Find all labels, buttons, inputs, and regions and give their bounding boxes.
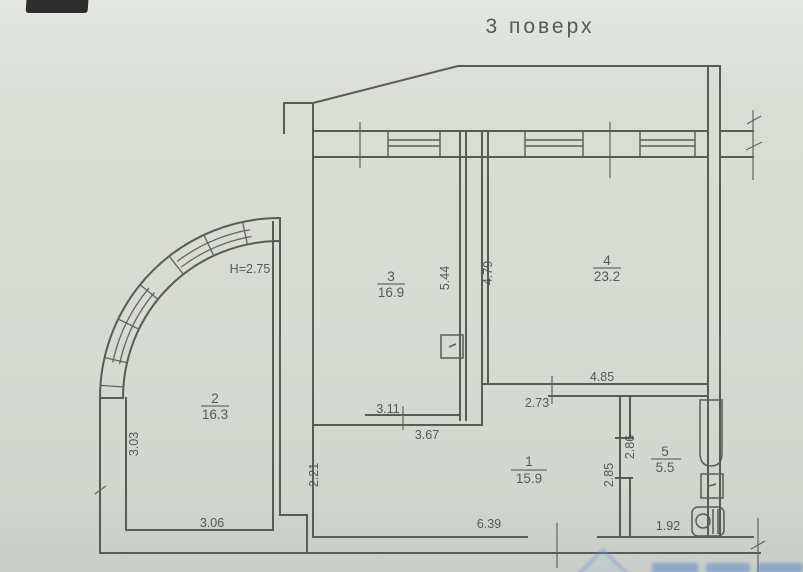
dim-room5-bottom: 1.92 — [656, 519, 680, 533]
room-3-number: 3 — [387, 269, 395, 284]
room-2-area: 16.3 — [202, 407, 228, 422]
dim-hall-left: 2.21 — [307, 463, 321, 487]
watermark-letters — [758, 563, 803, 572]
dim-room1-bottom: 6.39 — [477, 517, 501, 531]
dimension-ticks — [95, 110, 765, 572]
window-icons — [388, 131, 695, 157]
room-3-area: 16.9 — [378, 285, 404, 300]
room-4-number: 4 — [603, 253, 611, 268]
dim-room2-left: 3.03 — [127, 432, 141, 456]
dim-room3-opening: 3.11 — [376, 402, 399, 416]
dim-room1-top: 4.85 — [590, 370, 614, 384]
room-4-area: 23.2 — [594, 269, 620, 284]
room-5-area: 5.5 — [656, 460, 675, 475]
walls — [100, 66, 760, 553]
height-note-label: H=2.75 — [230, 262, 271, 276]
watermark-letters — [706, 563, 750, 572]
dim-hall-width: 3.67 — [415, 428, 439, 442]
room-1-area: 15.9 — [516, 471, 542, 486]
dim-room1-top-left: 2.73 — [525, 396, 549, 410]
dim-room5-wall-upper: 2.86 — [623, 435, 637, 459]
balcony-glazing — [100, 222, 251, 387]
page-title: 3 поверх — [485, 15, 594, 38]
watermark-letters — [652, 563, 698, 572]
dim-room4-left: 4.79 — [481, 261, 495, 285]
bathtub-icon — [700, 400, 722, 466]
dim-room3-right: 5.44 — [438, 266, 452, 290]
room-5-number: 5 — [661, 444, 669, 459]
floor-plan-drawing: 3 поверх H=2.75 1 15.9 2 16.3 3 16.9 4 2… — [0, 0, 803, 572]
room-2-number: 2 — [211, 391, 219, 406]
dim-room5-wall-lower: 2.85 — [602, 463, 616, 487]
scanned-floor-plan: 3 поверх H=2.75 1 15.9 2 16.3 3 16.9 4 2… — [0, 0, 803, 572]
dim-room2-bottom: 3.06 — [200, 516, 224, 530]
room-1-number: 1 — [525, 454, 533, 469]
